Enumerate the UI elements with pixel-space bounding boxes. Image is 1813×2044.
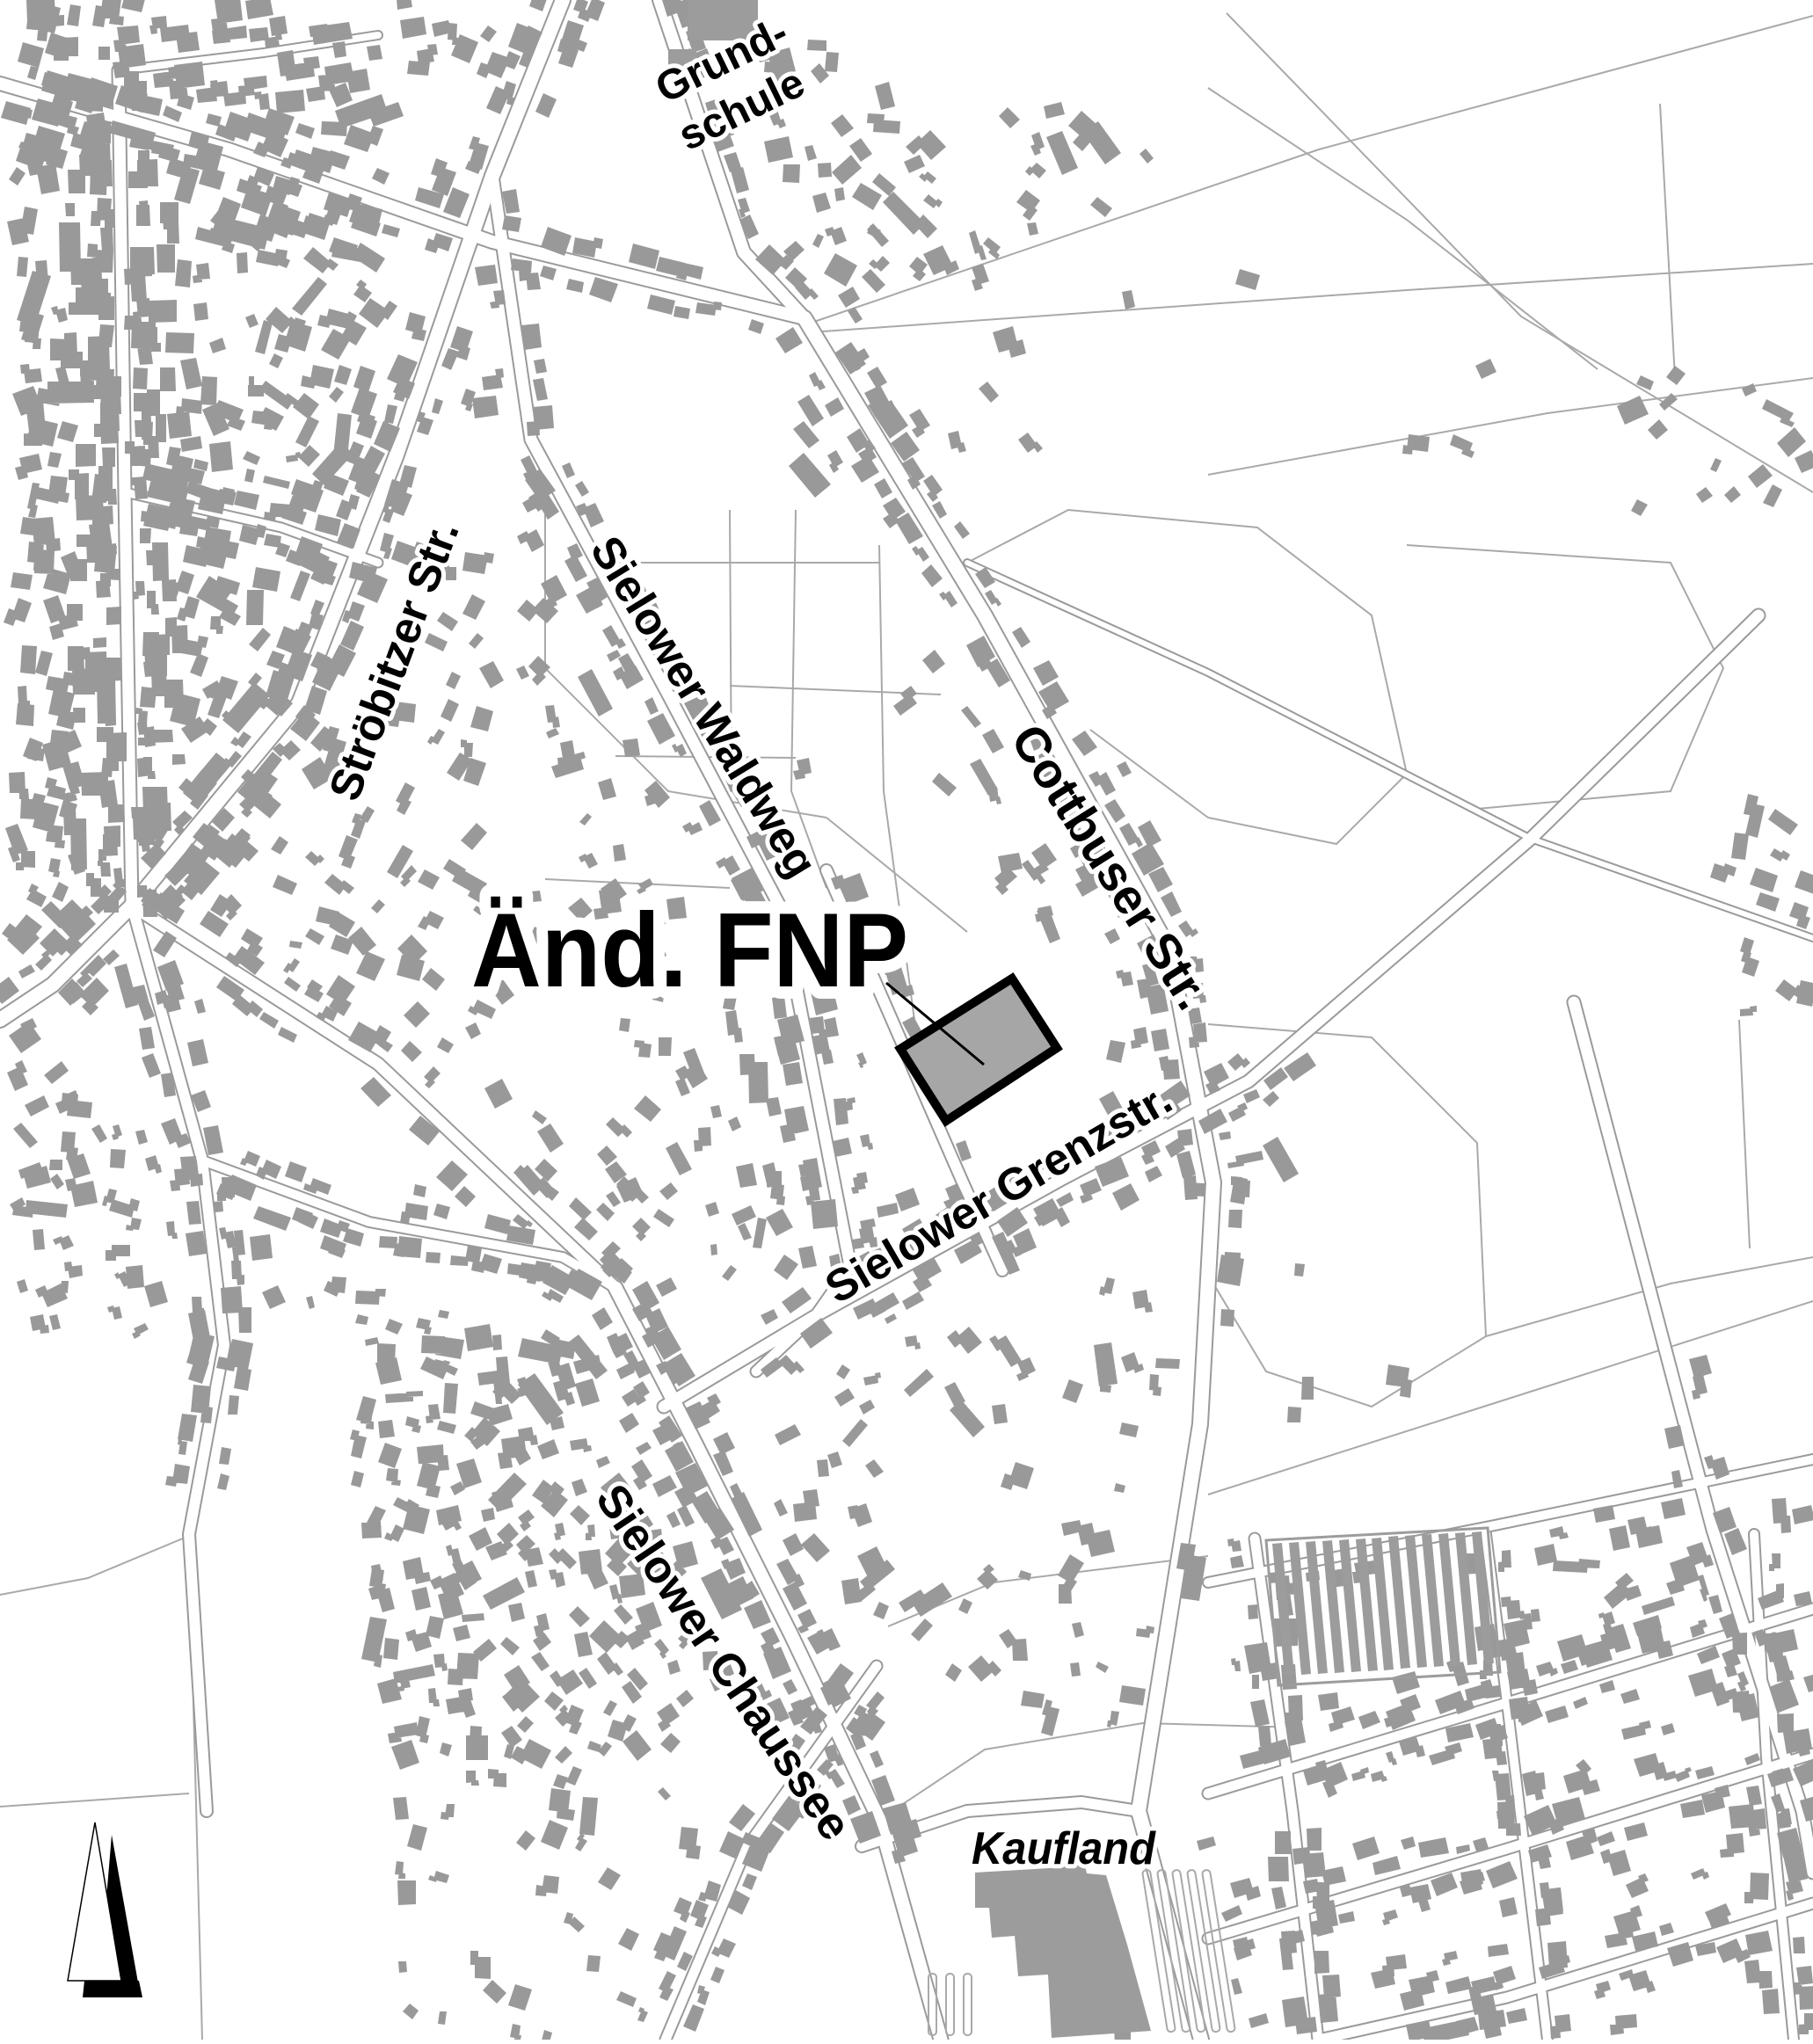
svg-text:Änd. FNP: Änd. FNP	[471, 891, 908, 1009]
svg-text:Kaufland: Kaufland	[972, 1823, 1156, 1874]
